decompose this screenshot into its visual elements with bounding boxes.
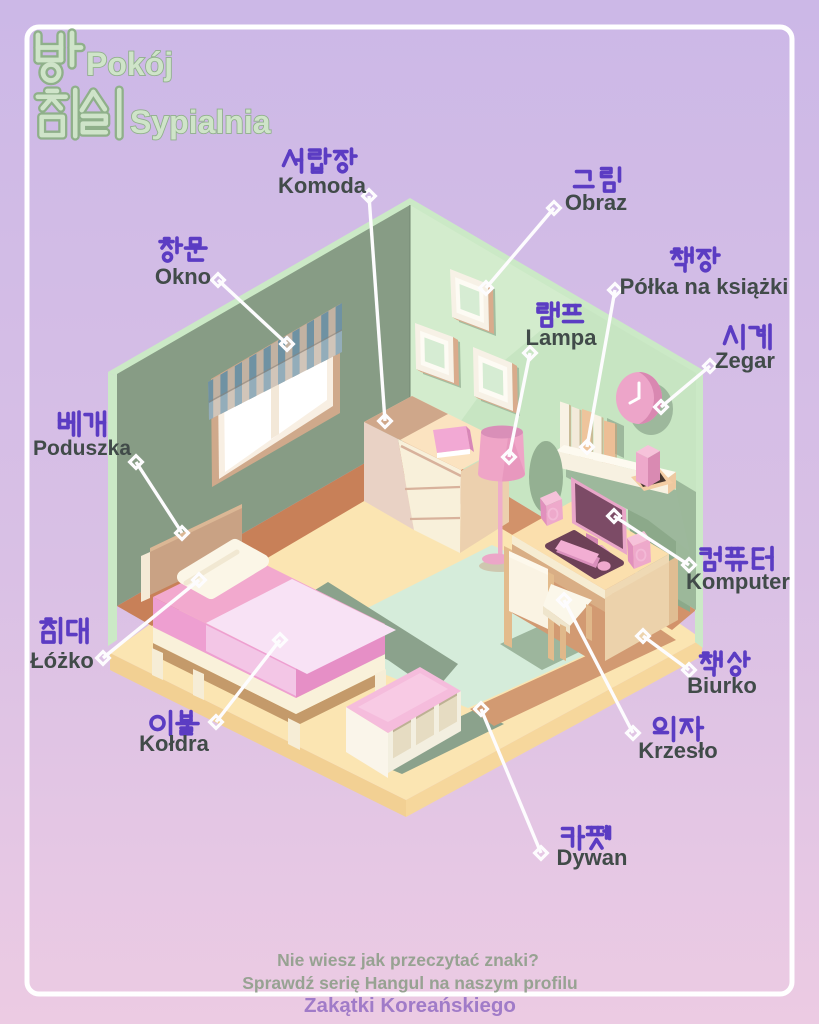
svg-text:Zegar: Zegar (715, 348, 775, 373)
svg-text:Kołdra: Kołdra (139, 731, 209, 756)
svg-text:Nie wiesz jak przeczytać znaki: Nie wiesz jak przeczytać znaki? (277, 950, 539, 970)
svg-text:Komoda: Komoda (278, 173, 367, 198)
svg-text:Półka na książki: Półka na książki (620, 274, 789, 299)
svg-text:Sprawdź serię Hangul na naszym: Sprawdź serię Hangul na naszym profilu (242, 973, 578, 993)
svg-text:Sypialnia: Sypialnia (130, 104, 271, 140)
svg-text:Zakątki Koreańskiego: Zakątki Koreańskiego (304, 994, 516, 1017)
svg-text:Okno: Okno (155, 264, 211, 289)
svg-text:Obraz: Obraz (565, 190, 627, 215)
svg-text:Pokój: Pokój (86, 46, 173, 82)
svg-text:Dywan: Dywan (557, 845, 628, 870)
svg-text:Poduszka: Poduszka (33, 437, 131, 460)
svg-text:Biurko: Biurko (687, 673, 757, 698)
svg-text:Komputer: Komputer (686, 569, 790, 594)
svg-text:Krzesło: Krzesło (638, 738, 717, 763)
svg-text:Lampa: Lampa (526, 325, 598, 350)
svg-text:Łóżko: Łóżko (30, 648, 94, 673)
